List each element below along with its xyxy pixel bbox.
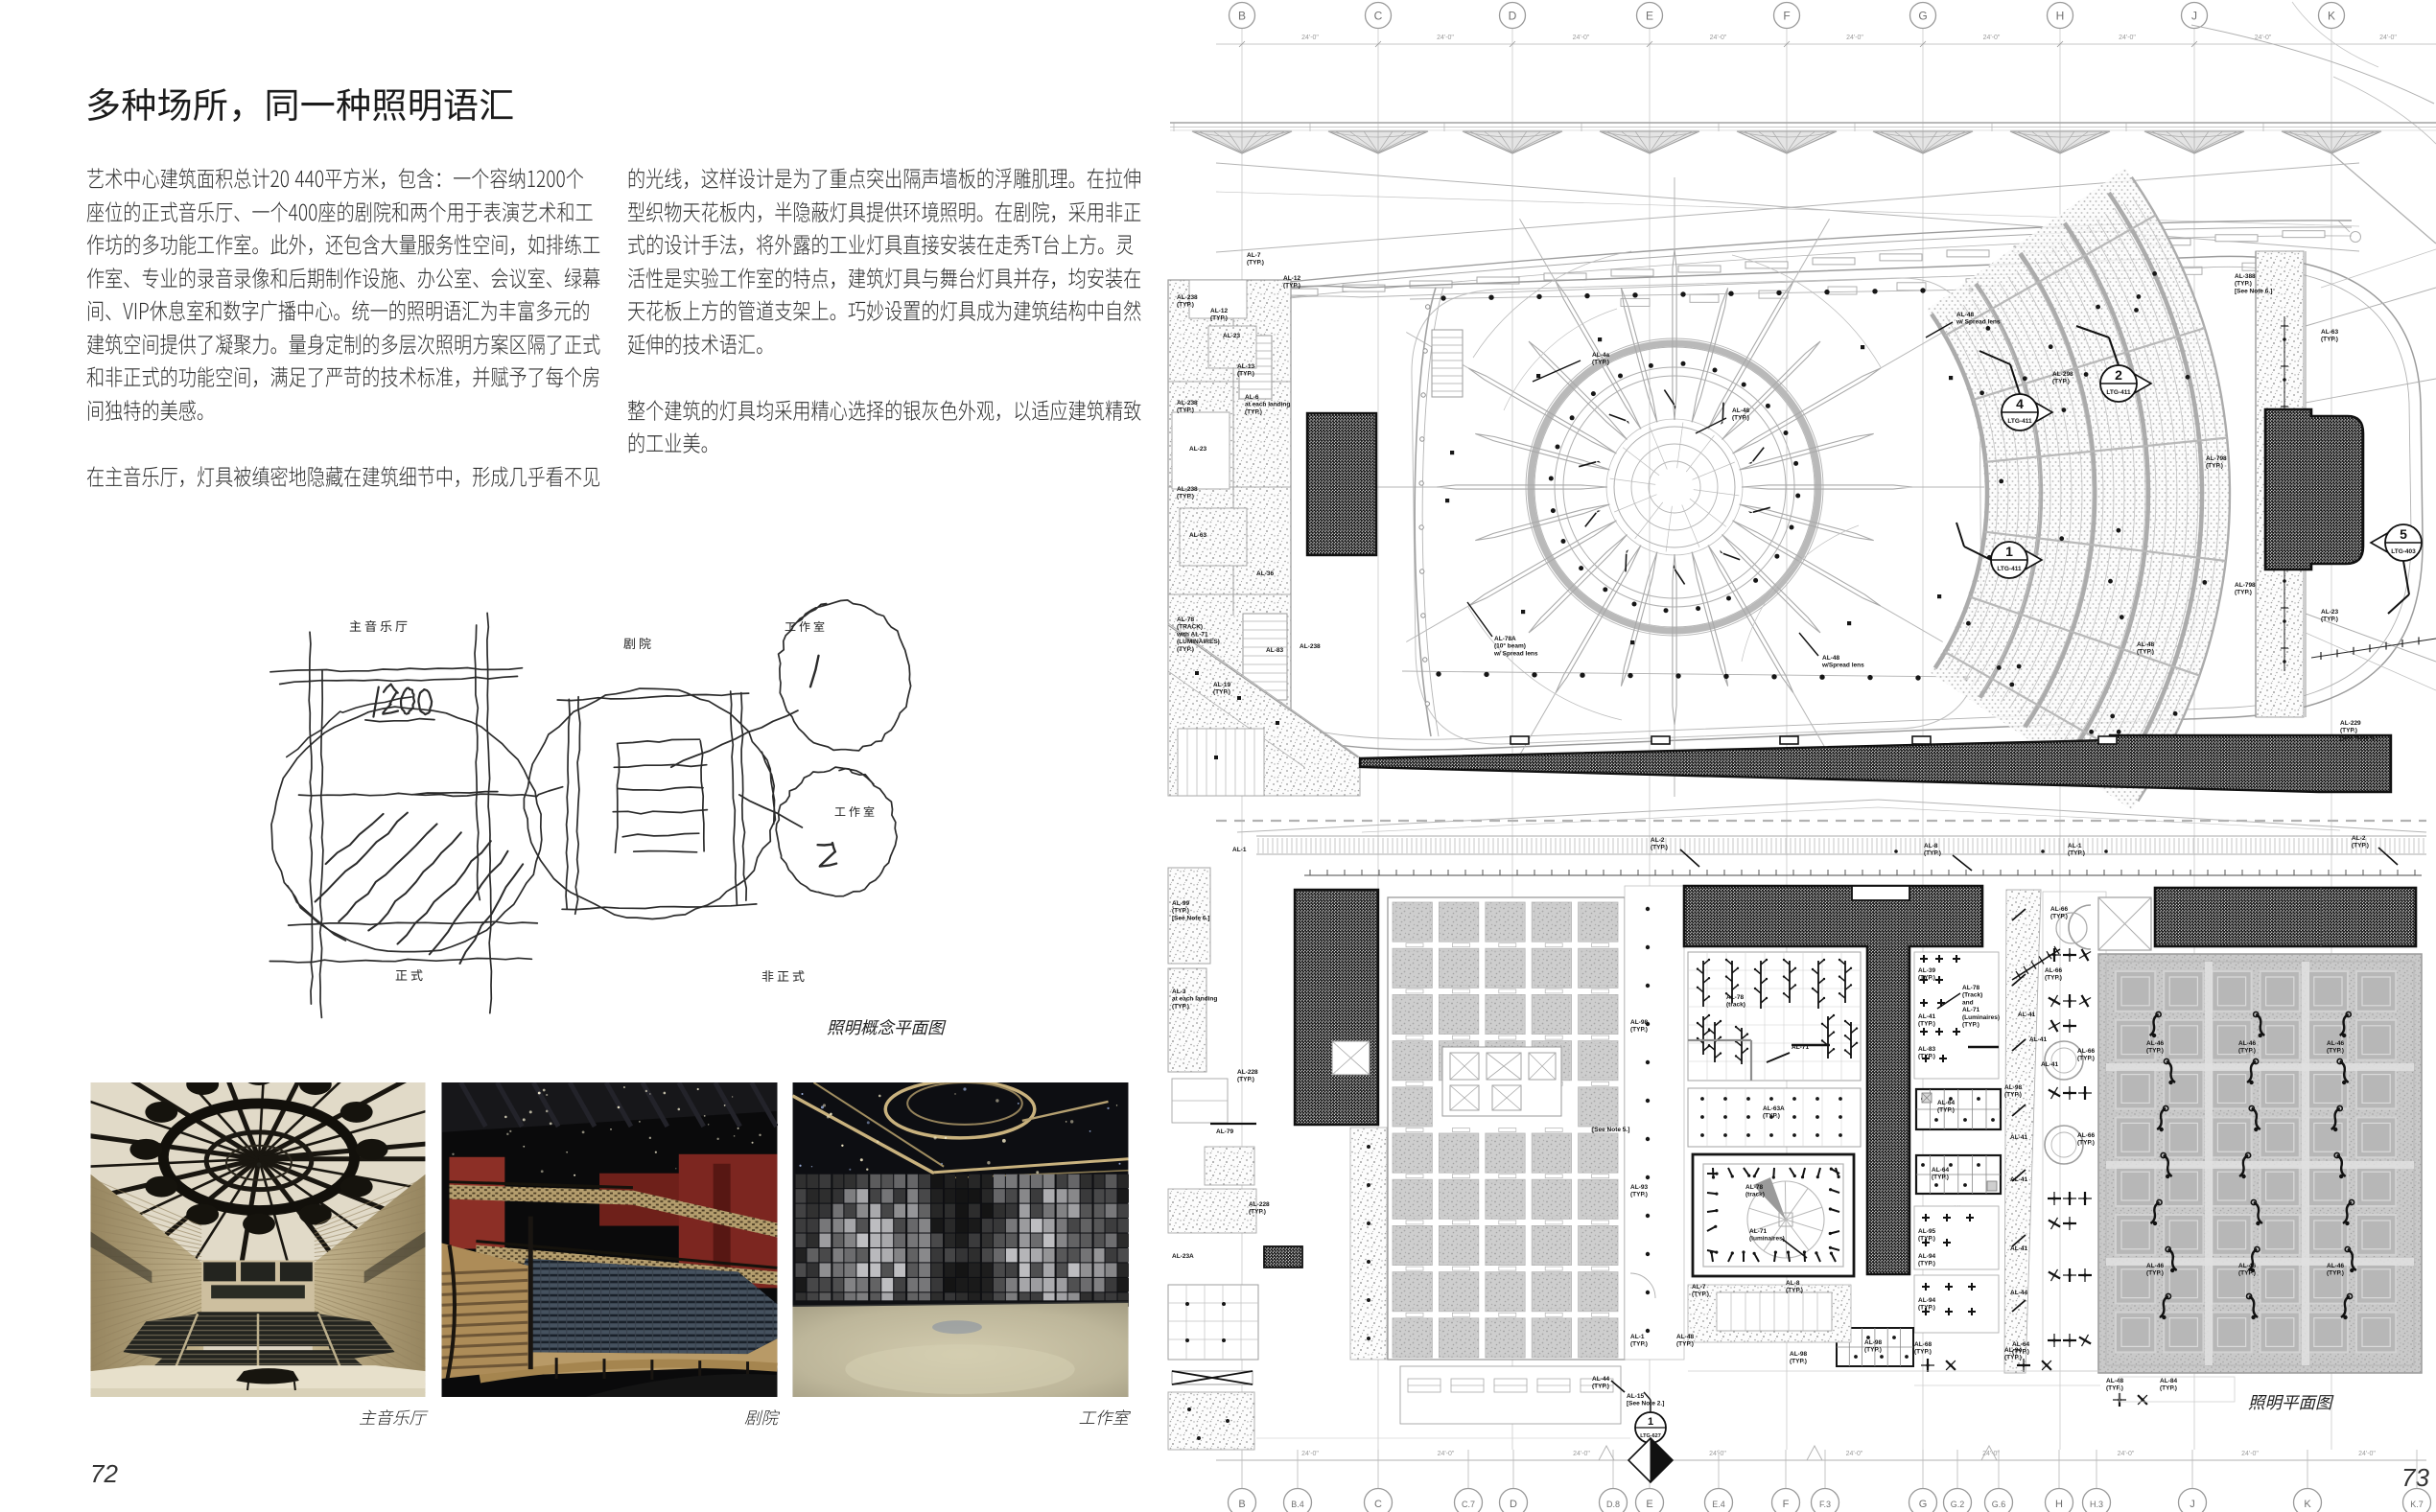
svg-text:D: D (1510, 1499, 1517, 1510)
svg-text:(TYP.): (TYP.) (1918, 1021, 1935, 1028)
svg-text:(TYP.): (TYP.) (2106, 1385, 2123, 1392)
svg-text:1: 1 (2005, 544, 2013, 559)
svg-text:AL-93: AL-93 (1630, 1184, 1648, 1191)
svg-text:AL-39: AL-39 (1918, 967, 1935, 974)
svg-text:(TYP.): (TYP.) (2238, 1048, 2256, 1055)
svg-text:24'-0": 24'-0" (1846, 35, 1863, 41)
svg-text:E: E (1646, 10, 1653, 23)
svg-text:at each landing: at each landing (1172, 996, 1217, 1003)
svg-text:(TYP.): (TYP.) (2004, 1355, 2022, 1361)
svg-text:(TYP.): (TYP.) (1918, 1054, 1935, 1060)
svg-text:(TYP.): (TYP.) (1247, 260, 1264, 267)
svg-text:AL-1: AL-1 (1232, 847, 1247, 853)
svg-text:(TYP.): (TYP.) (1213, 689, 1230, 696)
svg-text:AL-238: AL-238 (1300, 643, 1321, 650)
svg-text:24'-0": 24'-0" (1438, 1451, 1455, 1457)
svg-text:AL-83: AL-83 (1266, 647, 1283, 654)
svg-text:AL-41: AL-41 (2010, 1134, 2027, 1141)
svg-text:LTG-403: LTG-403 (2391, 548, 2416, 555)
svg-text:(TYP.): (TYP.) (2137, 649, 2154, 656)
svg-text:(TYP.): (TYP.) (2004, 1092, 2022, 1099)
svg-text:E.4: E.4 (1712, 1500, 1725, 1509)
svg-text:(TYP.): (TYP.) (1177, 407, 1194, 414)
svg-text:w/ Spread lens: w/ Spread lens (1493, 650, 1538, 657)
svg-text:AL-388: AL-388 (2235, 273, 2256, 280)
svg-text:at each landing: at each landing (1245, 402, 1290, 408)
svg-text:(TYP.): (TYP.) (2238, 1270, 2256, 1277)
svg-text:D.8: D.8 (1606, 1500, 1620, 1509)
svg-text:(luminaires): (luminaires) (1749, 1236, 1785, 1243)
svg-text:[See Note 2.]: [See Note 2.] (1627, 1401, 1664, 1407)
svg-text:J: J (2190, 1499, 2195, 1510)
svg-text:AL-48: AL-48 (2106, 1378, 2123, 1384)
svg-text:AL-94: AL-94 (1918, 1253, 1935, 1260)
svg-text:24'-0": 24'-0" (1709, 1451, 1726, 1457)
svg-text:(TYP.): (TYP.) (1177, 302, 1194, 309)
svg-text:AL-44: AL-44 (1592, 1376, 1609, 1383)
svg-text:(TYP.): (TYP.) (2327, 1270, 2344, 1277)
svg-text:AL-64: AL-64 (2012, 1341, 2029, 1348)
svg-text:AL-46: AL-46 (2238, 1263, 2256, 1269)
svg-text:(TYP.): (TYP.) (1918, 1236, 1935, 1243)
svg-text:AL-238: AL-238 (1177, 486, 1198, 493)
svg-text:(TYP.): (TYP.) (1630, 1027, 1648, 1034)
svg-text:E: E (1646, 1499, 1652, 1510)
svg-text:AL-23: AL-23 (2321, 609, 2338, 616)
svg-text:C.7: C.7 (1462, 1500, 1475, 1509)
svg-text:AL-63: AL-63 (2321, 329, 2338, 336)
svg-text:(TYP.): (TYP.) (1237, 1077, 1254, 1083)
svg-text:AL-7: AL-7 (1692, 1284, 1706, 1291)
svg-text:G.2: G.2 (1951, 1500, 1965, 1509)
svg-text:(TYP.): (TYP.) (2146, 1270, 2164, 1277)
svg-text:(TYP.): (TYP.) (2321, 337, 2338, 343)
svg-text:B: B (1238, 10, 1246, 23)
svg-text:24'-0": 24'-0" (2241, 1451, 2259, 1457)
svg-text:(TYP.): (TYP.) (1676, 1341, 1694, 1348)
svg-text:AL-798: AL-798 (2206, 455, 2227, 462)
svg-text:AL-48: AL-48 (1956, 312, 1974, 318)
svg-text:(TYP.): (TYP.) (2146, 1048, 2164, 1055)
svg-text:(TYP.): (TYP.) (1918, 975, 1935, 982)
svg-text:C: C (1374, 10, 1383, 23)
svg-text:AL-23: AL-23 (1189, 446, 1206, 453)
svg-text:AL-48: AL-48 (1676, 1334, 1694, 1340)
svg-text:AL-15: AL-15 (1627, 1393, 1644, 1400)
svg-text:AL-46: AL-46 (2146, 1040, 2164, 1047)
svg-text:G.6: G.6 (1992, 1500, 2006, 1509)
svg-text:AL-98: AL-98 (2004, 1084, 2022, 1091)
svg-text:(TYP.): (TYP.) (2052, 379, 2070, 385)
svg-text:AL-48: AL-48 (1732, 407, 1749, 414)
svg-text:(TYP.): (TYP.) (1932, 1175, 1949, 1181)
svg-text:AL-46: AL-46 (2146, 1263, 2164, 1269)
svg-text:AL-798: AL-798 (2235, 582, 2256, 589)
svg-text:AL-95: AL-95 (1918, 1228, 1935, 1235)
svg-text:(TYP.): (TYP.) (2321, 616, 2338, 623)
svg-text:(TYP.): (TYP.) (1790, 1359, 1807, 1365)
svg-text:AL-66: AL-66 (2077, 1132, 2095, 1139)
svg-text:24'-0": 24'-0" (1573, 35, 1590, 41)
svg-text:(TYP.): (TYP.) (1924, 850, 1941, 857)
svg-text:AL-12: AL-12 (1283, 275, 1300, 282)
svg-text:(Luminaires): (Luminaires) (1962, 1014, 2000, 1021)
svg-text:AL-94: AL-94 (1918, 1297, 1935, 1304)
svg-text:AL-63: AL-63 (1189, 532, 1206, 539)
svg-text:(TYP.): (TYP.) (1692, 1291, 1709, 1298)
svg-text:H.3: H.3 (2090, 1500, 2103, 1509)
svg-text:(TYP.): (TYP.) (1245, 408, 1262, 415)
svg-text:AL-71: AL-71 (1749, 1228, 1767, 1235)
svg-text:(TYP.): (TYP.) (1864, 1347, 1882, 1354)
svg-text:24'-0": 24'-0" (2118, 1451, 2135, 1457)
svg-text:(TYP.): (TYP.) (1630, 1341, 1648, 1348)
svg-text:(TYP.): (TYP.) (2068, 850, 2085, 857)
svg-text:K: K (2328, 10, 2335, 23)
svg-text:(10° beam): (10° beam) (1494, 642, 1526, 650)
svg-text:(TYP.): (TYP.) (1249, 1209, 1266, 1216)
svg-text:AL-3: AL-3 (1172, 989, 1186, 995)
svg-text:LTG-411: LTG-411 (1997, 566, 2022, 572)
svg-text:AL-44: AL-44 (2010, 1290, 2027, 1296)
svg-text:AL-19: AL-19 (1213, 682, 1230, 688)
svg-text:B: B (1238, 1499, 1245, 1510)
svg-text:24'-0": 24'-0" (1573, 1451, 1590, 1457)
svg-text:(TYP.): (TYP.) (2206, 463, 2223, 470)
svg-text:(Track): (Track) (1962, 992, 1982, 999)
svg-text:4: 4 (2016, 396, 2024, 411)
svg-text:AL-6: AL-6 (1245, 394, 1259, 401)
svg-text:1: 1 (1648, 1416, 1653, 1428)
svg-text:H: H (2055, 1499, 2063, 1510)
svg-text:(TYP.): (TYP.) (2327, 1048, 2344, 1055)
svg-text:AL-79: AL-79 (1216, 1128, 1233, 1135)
svg-text:AL-238: AL-238 (1177, 400, 1198, 407)
svg-text:AL-12: AL-12 (1210, 308, 1228, 314)
svg-text:(LUMINAIRES): (LUMINAIRES) (1177, 639, 1220, 645)
svg-text:(TYP.): (TYP.) (2235, 590, 2252, 596)
svg-text:F: F (1783, 1499, 1790, 1510)
svg-text:AL-84: AL-84 (2160, 1378, 2177, 1384)
svg-text:AL-99: AL-99 (1172, 900, 1189, 907)
svg-text:AL-46: AL-46 (2238, 1040, 2256, 1047)
svg-text:AL-48: AL-48 (2137, 641, 2154, 648)
svg-text:(TYP.): (TYP.) (2235, 281, 2252, 288)
svg-text:AL-41: AL-41 (1918, 1013, 1935, 1020)
svg-text:AL-66: AL-66 (2077, 1048, 2095, 1055)
svg-text:AL-98: AL-98 (1630, 1019, 1648, 1026)
svg-text:AL-228: AL-228 (1237, 1069, 1258, 1076)
svg-text:[See Note 6.]: [See Note 6.] (2235, 288, 2272, 294)
svg-text:AL-36: AL-36 (1256, 570, 1274, 577)
svg-text:AL-98: AL-98 (1790, 1351, 1807, 1358)
svg-text:24'-0": 24'-0" (2358, 1451, 2376, 1457)
svg-text:24'-0": 24'-0" (1437, 35, 1454, 41)
svg-text:w/ Spread lens: w/ Spread lens (1956, 319, 2001, 326)
svg-text:AL-78: AL-78 (1962, 985, 1979, 991)
svg-text:(TYP.): (TYP.) (1630, 1192, 1648, 1198)
svg-text:(TYP.): (TYP.) (1937, 1107, 1955, 1114)
svg-text:F.3: F.3 (1819, 1500, 1831, 1509)
svg-text:(TYP.): (TYP.) (2050, 914, 2068, 920)
svg-text:LTG-411: LTG-411 (2007, 418, 2032, 425)
svg-text:(TYP.): (TYP.) (1651, 845, 1668, 851)
svg-text:AL-66: AL-66 (2050, 906, 2068, 913)
svg-text:(TYP.): (TYP.) (2160, 1385, 2177, 1392)
svg-text:and: and (1962, 999, 1974, 1006)
svg-text:(TYP.): (TYP.) (2340, 728, 2357, 734)
svg-text:D: D (1509, 10, 1517, 23)
svg-text:(TYP.): (TYP.) (2012, 1349, 2029, 1356)
svg-text:(TYP.): (TYP.) (1592, 1384, 1609, 1390)
svg-text:AL-41: AL-41 (2010, 1176, 2027, 1183)
svg-text:[See Note 6.]: [See Note 6.] (2340, 734, 2377, 741)
svg-text:w/Spread lens: w/Spread lens (1821, 663, 1864, 669)
svg-text:H: H (2056, 10, 2065, 23)
svg-text:[See Note 6.]: [See Note 6.] (1172, 915, 1209, 921)
svg-text:AL-1: AL-1 (1630, 1334, 1645, 1340)
svg-text:AL-23: AL-23 (1223, 333, 1240, 339)
svg-text:(TYP.): (TYP.) (1237, 371, 1254, 378)
svg-text:AL-229: AL-229 (2340, 720, 2361, 727)
svg-text:AL-78: AL-78 (1177, 616, 1194, 623)
svg-text:(TYP.): (TYP.) (2077, 1140, 2095, 1147)
svg-text:J: J (2191, 10, 2197, 23)
svg-text:AL-64: AL-64 (1937, 1100, 1955, 1106)
svg-text:24'-0": 24'-0" (1846, 1451, 1863, 1457)
svg-text:G: G (1919, 1499, 1928, 1510)
svg-text:24'-0": 24'-0" (1710, 35, 1727, 41)
svg-text:AL-71: AL-71 (1962, 1007, 1979, 1013)
svg-text:(TYP.): (TYP.) (1172, 1003, 1189, 1010)
svg-text:(TYP.): (TYP.) (1918, 1305, 1935, 1312)
svg-text:AL-8: AL-8 (1786, 1280, 1800, 1287)
svg-text:(TYP.): (TYP.) (1172, 908, 1189, 915)
svg-text:AL-298: AL-298 (2052, 371, 2073, 378)
svg-text:AL-7: AL-7 (1247, 252, 1261, 259)
svg-text:(TYP.): (TYP.) (2352, 843, 2369, 849)
svg-text:AL-8: AL-8 (1924, 843, 1938, 849)
svg-text:AL-98: AL-98 (1864, 1339, 1882, 1346)
svg-text:24'-0": 24'-0" (1301, 1451, 1319, 1457)
svg-text:(TYP.): (TYP.) (1177, 646, 1194, 653)
svg-text:with AL-71: with AL-71 (1176, 631, 1208, 638)
svg-text:(TYP.): (TYP.) (1962, 1022, 1979, 1029)
svg-text:(TYP.): (TYP.) (2045, 975, 2062, 982)
svg-text:K.7: K.7 (2410, 1500, 2424, 1509)
svg-text:AL-1: AL-1 (2068, 843, 2082, 849)
svg-text:(TYP.): (TYP.) (1210, 315, 1228, 322)
svg-text:G: G (1918, 10, 1927, 23)
svg-text:(TYP.): (TYP.) (1732, 415, 1749, 422)
svg-text:[See Note 5.]: [See Note 5.] (1592, 1127, 1629, 1133)
svg-text:B.4: B.4 (1291, 1500, 1304, 1509)
svg-text:(TYP.): (TYP.) (1918, 1261, 1935, 1268)
svg-text:AL-2: AL-2 (2352, 835, 2366, 842)
svg-text:(track): (track) (1726, 1002, 1745, 1009)
svg-text:K: K (2304, 1499, 2311, 1510)
svg-text:AL-66: AL-66 (2045, 967, 2062, 974)
svg-text:AL-2: AL-2 (1651, 837, 1665, 844)
svg-text:AL-13: AL-13 (1237, 363, 1254, 370)
svg-text:AL-83: AL-83 (1918, 1046, 1935, 1053)
svg-text:AL-68: AL-68 (1914, 1341, 1932, 1348)
svg-text:AL-63A: AL-63A (1763, 1105, 1785, 1112)
svg-text:(TYP.): (TYP.) (1283, 283, 1300, 290)
svg-text:AL-4a: AL-4a (1592, 352, 1609, 359)
svg-text:24'-0": 24'-0" (1983, 35, 2001, 41)
svg-text:(TYP.): (TYP.) (1914, 1349, 1932, 1356)
svg-text:24'-0": 24'-0" (2119, 35, 2136, 41)
svg-text:5: 5 (2400, 526, 2407, 542)
svg-text:2: 2 (2115, 367, 2122, 383)
svg-text:AL-228: AL-228 (1249, 1201, 1270, 1208)
svg-text:(TRACK): (TRACK) (1177, 624, 1203, 631)
svg-text:F: F (1783, 10, 1790, 23)
svg-text:AL-41: AL-41 (2041, 1061, 2058, 1068)
svg-text:AL-238: AL-238 (1177, 294, 1198, 301)
svg-text:AL-78: AL-78 (1745, 1184, 1763, 1191)
svg-text:(TYP.): (TYP.) (1592, 360, 1609, 366)
svg-text:AL-64: AL-64 (1932, 1167, 1949, 1174)
svg-text:AL-78: AL-78 (1726, 994, 1744, 1001)
svg-text:AL-78A: AL-78A (1494, 636, 1516, 642)
svg-text:LTG-411: LTG-411 (2106, 389, 2131, 396)
svg-text:(TYP.): (TYP.) (1786, 1288, 1803, 1294)
svg-text:(TYP.): (TYP.) (1177, 494, 1194, 500)
svg-text:AL-41: AL-41 (2029, 1036, 2047, 1043)
svg-text:AL-41: AL-41 (2018, 1012, 2035, 1018)
svg-text:AL-23A: AL-23A (1172, 1253, 1194, 1260)
svg-text:AL-46: AL-46 (2327, 1263, 2344, 1269)
svg-text:AL-48: AL-48 (1822, 655, 1839, 662)
svg-text:AL-46: AL-46 (2327, 1040, 2344, 1047)
svg-text:AL-41: AL-41 (2010, 1245, 2027, 1252)
svg-text:24'-0": 24'-0" (1301, 35, 1319, 41)
svg-text:(track): (track) (1745, 1192, 1765, 1198)
svg-text:(TYP.): (TYP.) (1763, 1113, 1780, 1120)
svg-text:24'-0": 24'-0" (2379, 35, 2397, 41)
svg-text:C: C (1374, 1499, 1382, 1510)
svg-text:(TYP.): (TYP.) (2077, 1056, 2095, 1062)
